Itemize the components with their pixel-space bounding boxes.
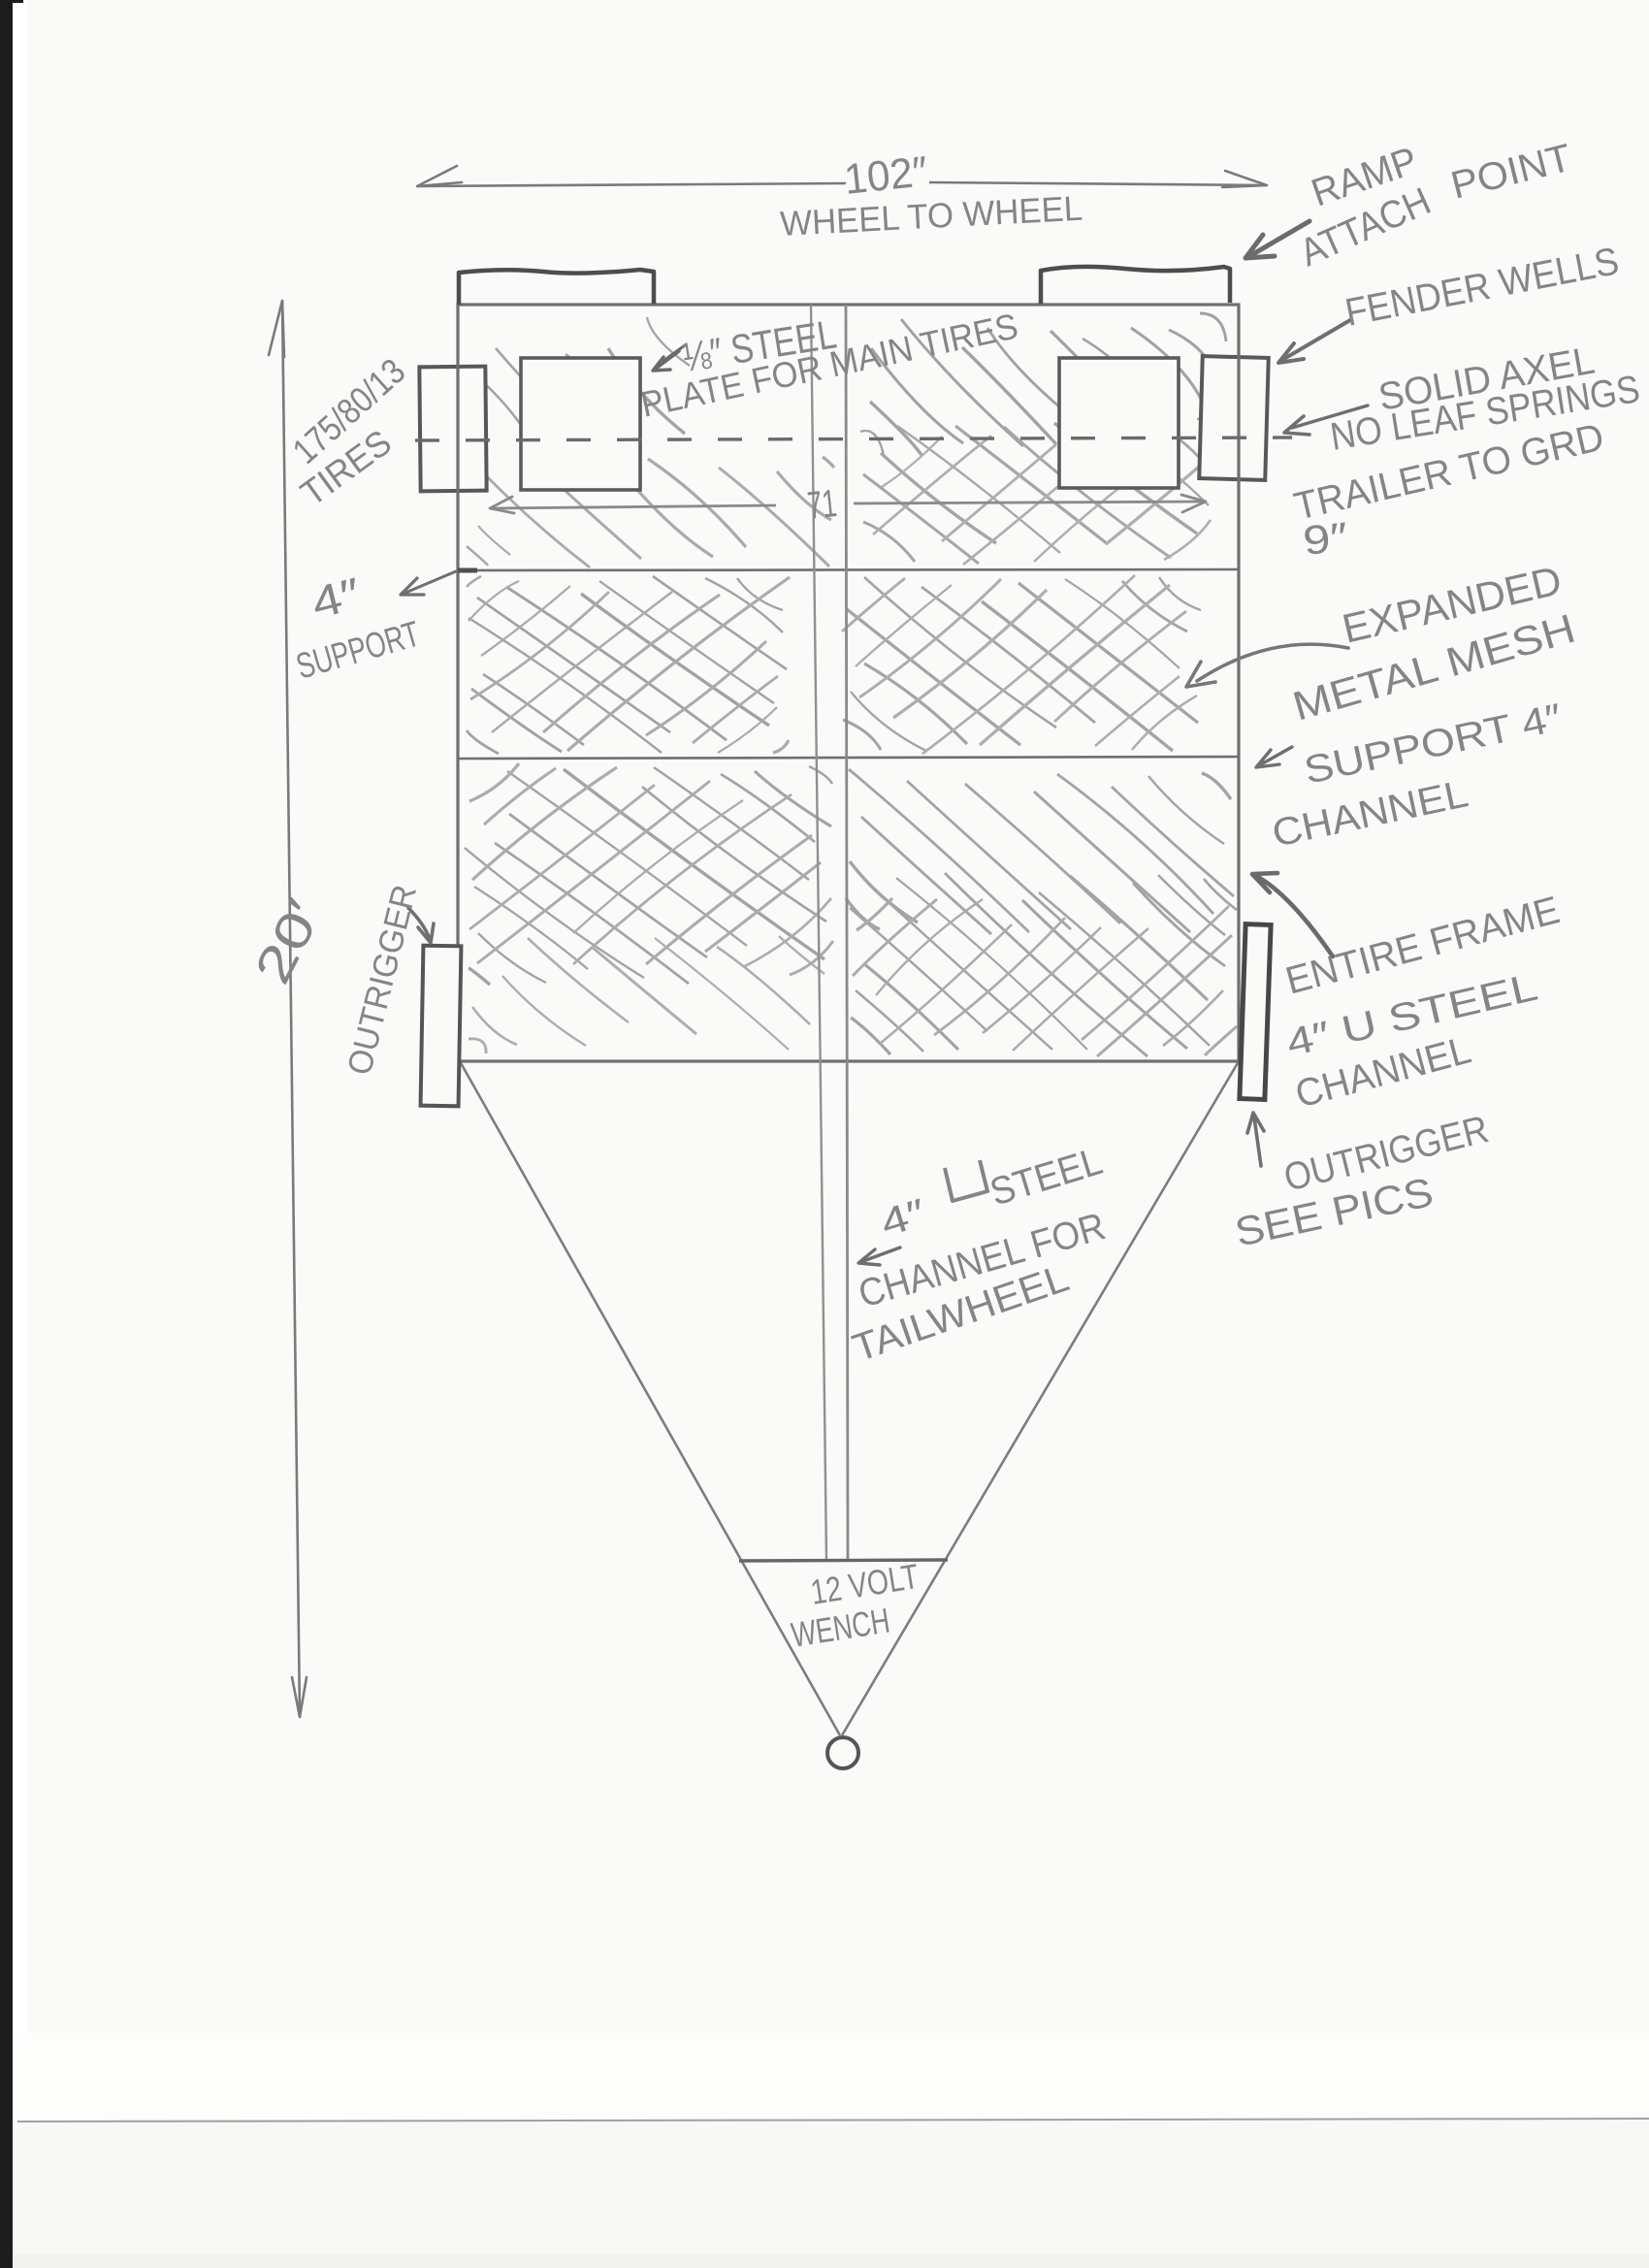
svg-text:102″: 102″ (842, 147, 930, 204)
svg-text:71: 71 (805, 482, 838, 528)
svg-text:9″: 9″ (1301, 513, 1350, 564)
